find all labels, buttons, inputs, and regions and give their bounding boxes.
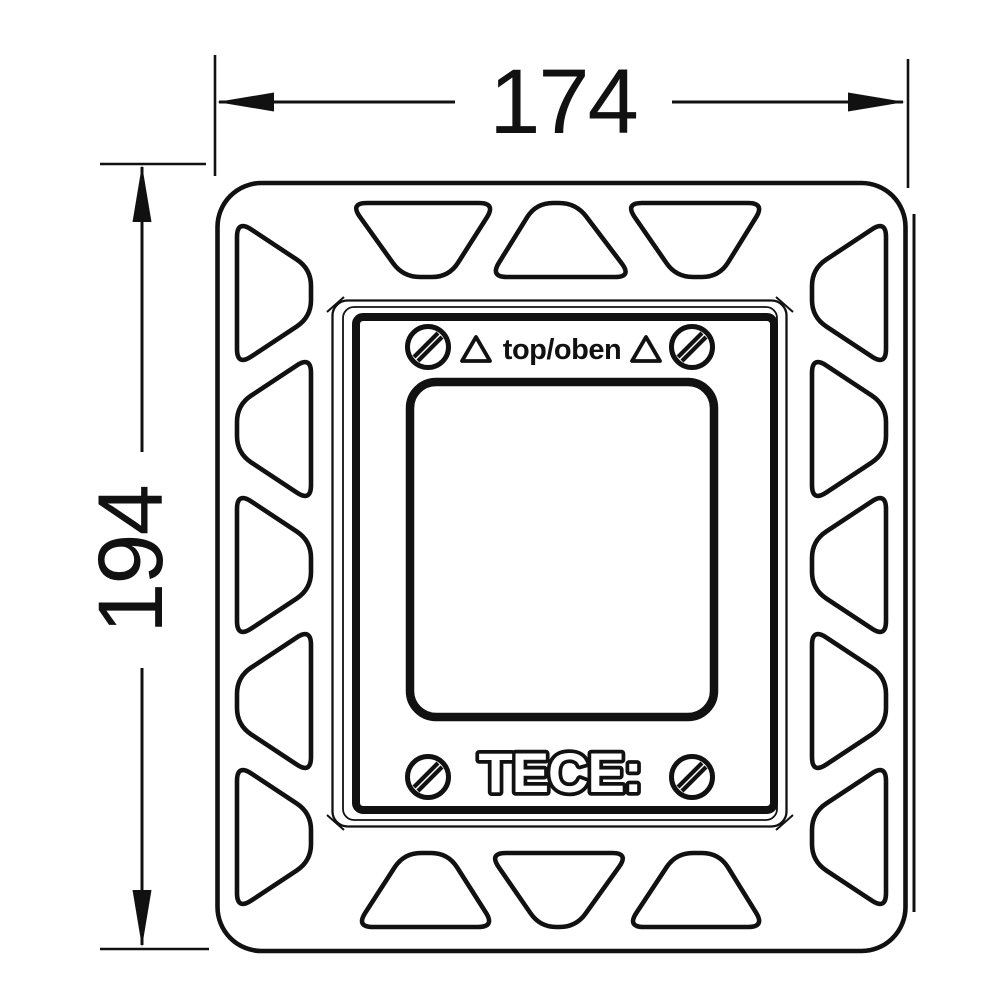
cutout-top-3	[631, 203, 759, 277]
screw-head	[408, 757, 449, 798]
cutout-left-1	[237, 226, 311, 360]
slotted-screw-icon	[672, 327, 713, 368]
width-dimension-value: 174	[489, 51, 637, 153]
orientation-markers: top/oben	[462, 334, 660, 366]
arrowhead-icon	[133, 890, 152, 947]
cutout-right-5	[812, 770, 886, 904]
screw-head	[408, 327, 449, 368]
triangle-up-icon	[632, 337, 660, 361]
cutout-right-1	[812, 226, 886, 360]
cutout-bottom-1	[362, 853, 489, 927]
cutout-left-5	[237, 770, 311, 904]
arrowhead-icon	[217, 93, 274, 112]
cutout-right-4	[812, 634, 886, 768]
cutout-top-1	[356, 203, 490, 277]
screw-head	[672, 327, 713, 368]
cutout-right-2	[812, 362, 886, 496]
arrowhead-icon	[133, 165, 152, 222]
slotted-screw-icon	[672, 757, 713, 798]
technical-drawing-page: 174 194 top/oben TECE:	[0, 0, 1000, 1000]
screw-slot	[414, 763, 442, 791]
outer-frame	[218, 183, 915, 951]
slotted-screw-icon	[408, 327, 449, 368]
arrowhead-icon	[848, 93, 905, 112]
screw-slot	[414, 333, 442, 361]
orientation-label: top/oben	[503, 334, 621, 366]
screw-slot	[678, 333, 706, 361]
outer-frame-outline	[218, 183, 906, 951]
dimension-width: 174	[215, 51, 908, 188]
cutout-bottom-2	[495, 853, 623, 927]
cutout-right-3	[812, 498, 886, 632]
plate-opening	[410, 382, 714, 717]
cutout-bottom-3	[633, 853, 759, 927]
cutout-top-2	[496, 203, 626, 277]
screws	[408, 327, 713, 798]
screw-slot	[678, 763, 706, 791]
cutout-left-2	[237, 362, 311, 496]
slotted-screw-icon	[408, 757, 449, 798]
cutout-left-4	[237, 634, 311, 768]
brand-logo: TECE:	[479, 741, 642, 804]
height-dimension-value: 194	[80, 486, 182, 634]
triangle-up-icon	[462, 337, 490, 361]
cutout-left-3	[237, 498, 311, 632]
mounting-frame-drawing: 174 194 top/oben TECE:	[0, 0, 1000, 1000]
screw-head	[672, 757, 713, 798]
dimension-height: 194	[80, 164, 209, 949]
